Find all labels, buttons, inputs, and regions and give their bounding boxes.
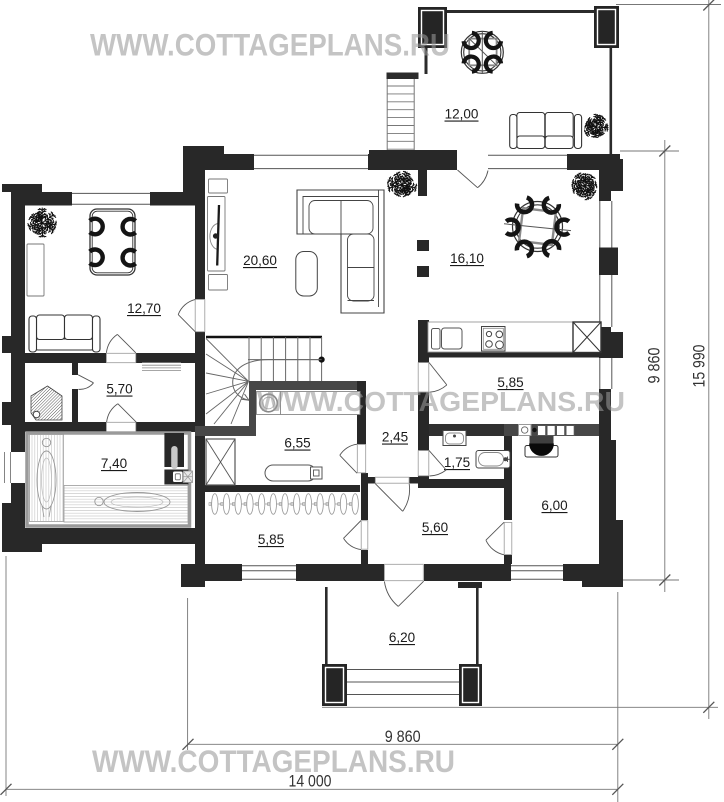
svg-text:20,60: 20,60: [243, 253, 277, 268]
svg-text:16,10: 16,10: [450, 251, 484, 266]
svg-text:5,70: 5,70: [106, 382, 132, 397]
svg-text:12,00: 12,00: [445, 107, 479, 122]
svg-text:5,85: 5,85: [258, 532, 284, 547]
svg-text:WWW.COTTAGEPLANS.RU: WWW.COTTAGEPLANS.RU: [92, 743, 455, 779]
svg-text:6,20: 6,20: [389, 630, 415, 645]
svg-text:6,00: 6,00: [541, 498, 567, 513]
svg-text:5,60: 5,60: [422, 520, 448, 535]
svg-text:12,70: 12,70: [127, 301, 161, 316]
svg-text:6,55: 6,55: [284, 436, 310, 451]
svg-text:WWW.COTTAGEPLANS.RU: WWW.COTTAGEPLANS.RU: [90, 27, 450, 63]
svg-text:9 860: 9 860: [645, 348, 664, 384]
svg-text:7,40: 7,40: [101, 456, 127, 471]
svg-text:1,75: 1,75: [444, 455, 470, 470]
svg-text:15 990: 15 990: [690, 345, 709, 388]
svg-text:WWW.COTTAGEPLANS.RU: WWW.COTTAGEPLANS.RU: [257, 386, 625, 417]
svg-text:2,45: 2,45: [382, 430, 408, 445]
